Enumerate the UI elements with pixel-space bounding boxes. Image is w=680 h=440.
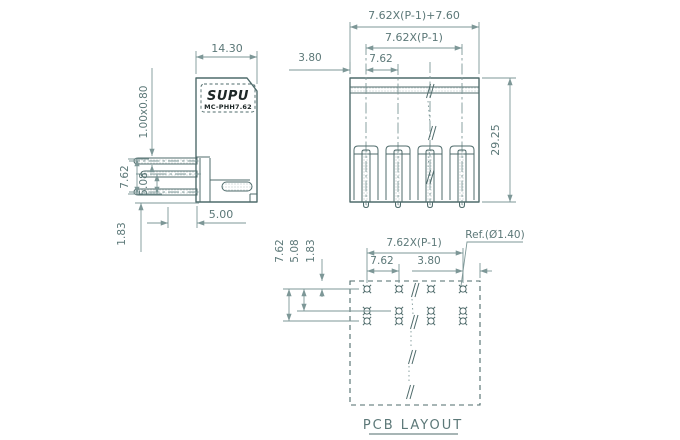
pcb-hole bbox=[395, 307, 403, 315]
dim-pcb-row-span: 7.62 bbox=[274, 239, 286, 262]
pcb-layout-title: PCB LAYOUT bbox=[363, 418, 463, 433]
pcb-dimensions: 7.62 5.08 1.83 7.62X(P-1) 7.62 3.80 Ref.… bbox=[274, 229, 525, 321]
dim-pcb-pitch: 7.62 bbox=[370, 255, 393, 267]
drawing-canvas: SUPU MC-PHH7.62 14.30 1.00x0.80 7.62 bbox=[0, 0, 680, 440]
pcb-hole bbox=[459, 317, 467, 325]
side-body-details bbox=[196, 157, 257, 202]
pcb-break-lines bbox=[407, 283, 420, 399]
front-view: 7.62X(P-1)+7.60 7.62X(P-1) 7.62 3.80 29.… bbox=[289, 9, 516, 208]
pcb-hole bbox=[427, 285, 435, 293]
dim-side-pin-span: 7.62 bbox=[119, 165, 131, 188]
front-top-band bbox=[350, 87, 479, 93]
technical-drawing: SUPU MC-PHH7.62 14.30 1.00x0.80 7.62 bbox=[0, 0, 680, 440]
pcb-hole bbox=[395, 285, 403, 293]
hole-ref-label: Ref.(Ø1.40) bbox=[465, 229, 524, 241]
pcb-hole bbox=[459, 285, 467, 293]
pcb-holes bbox=[363, 285, 467, 325]
pcb-hole bbox=[427, 307, 435, 315]
dim-side-pin-section: 1.00x0.80 bbox=[138, 86, 150, 139]
dim-front-pin-span: 7.62X(P-1) bbox=[385, 31, 443, 44]
front-centerlines bbox=[366, 44, 462, 205]
pcb-hole bbox=[363, 317, 371, 325]
side-view: SUPU MC-PHH7.62 14.30 1.00x0.80 7.62 bbox=[116, 42, 257, 252]
pcb-hole bbox=[427, 317, 435, 325]
dim-side-pin-offset: 1.83 bbox=[116, 222, 128, 245]
dim-pcb-edge-gap: 3.80 bbox=[417, 255, 440, 267]
dim-front-pitch: 7.62 bbox=[369, 53, 392, 65]
dim-side-pin-length: 5.00 bbox=[209, 208, 234, 221]
front-towers bbox=[354, 146, 474, 200]
pcb-hole bbox=[395, 317, 403, 325]
dim-front-height: 29.25 bbox=[489, 124, 502, 156]
side-dimensions: 14.30 1.00x0.80 7.62 5.08 1.83 5.00 bbox=[116, 42, 257, 252]
model-number: MC-PHH7.62 bbox=[204, 103, 252, 111]
dim-side-width: 14.30 bbox=[211, 42, 243, 55]
pcb-hole bbox=[363, 285, 371, 293]
pcb-outline bbox=[350, 281, 480, 405]
dim-pcb-edge-offset: 1.83 bbox=[305, 239, 317, 262]
dim-side-pin-pitch: 5.08 bbox=[138, 172, 150, 195]
dim-front-edge-offset: 3.80 bbox=[298, 52, 321, 64]
hole-ref-leader bbox=[461, 242, 523, 286]
brand-logo: SUPU bbox=[207, 89, 249, 104]
dim-pcb-row-pitch: 5.08 bbox=[289, 239, 301, 262]
dim-pcb-pin-span: 7.62X(P-1) bbox=[386, 237, 441, 249]
pcb-layout: 7.62 5.08 1.83 7.62X(P-1) 7.62 3.80 Ref.… bbox=[274, 229, 525, 434]
pcb-hole bbox=[459, 307, 467, 315]
dim-front-total-width: 7.62X(P-1)+7.60 bbox=[368, 9, 460, 22]
